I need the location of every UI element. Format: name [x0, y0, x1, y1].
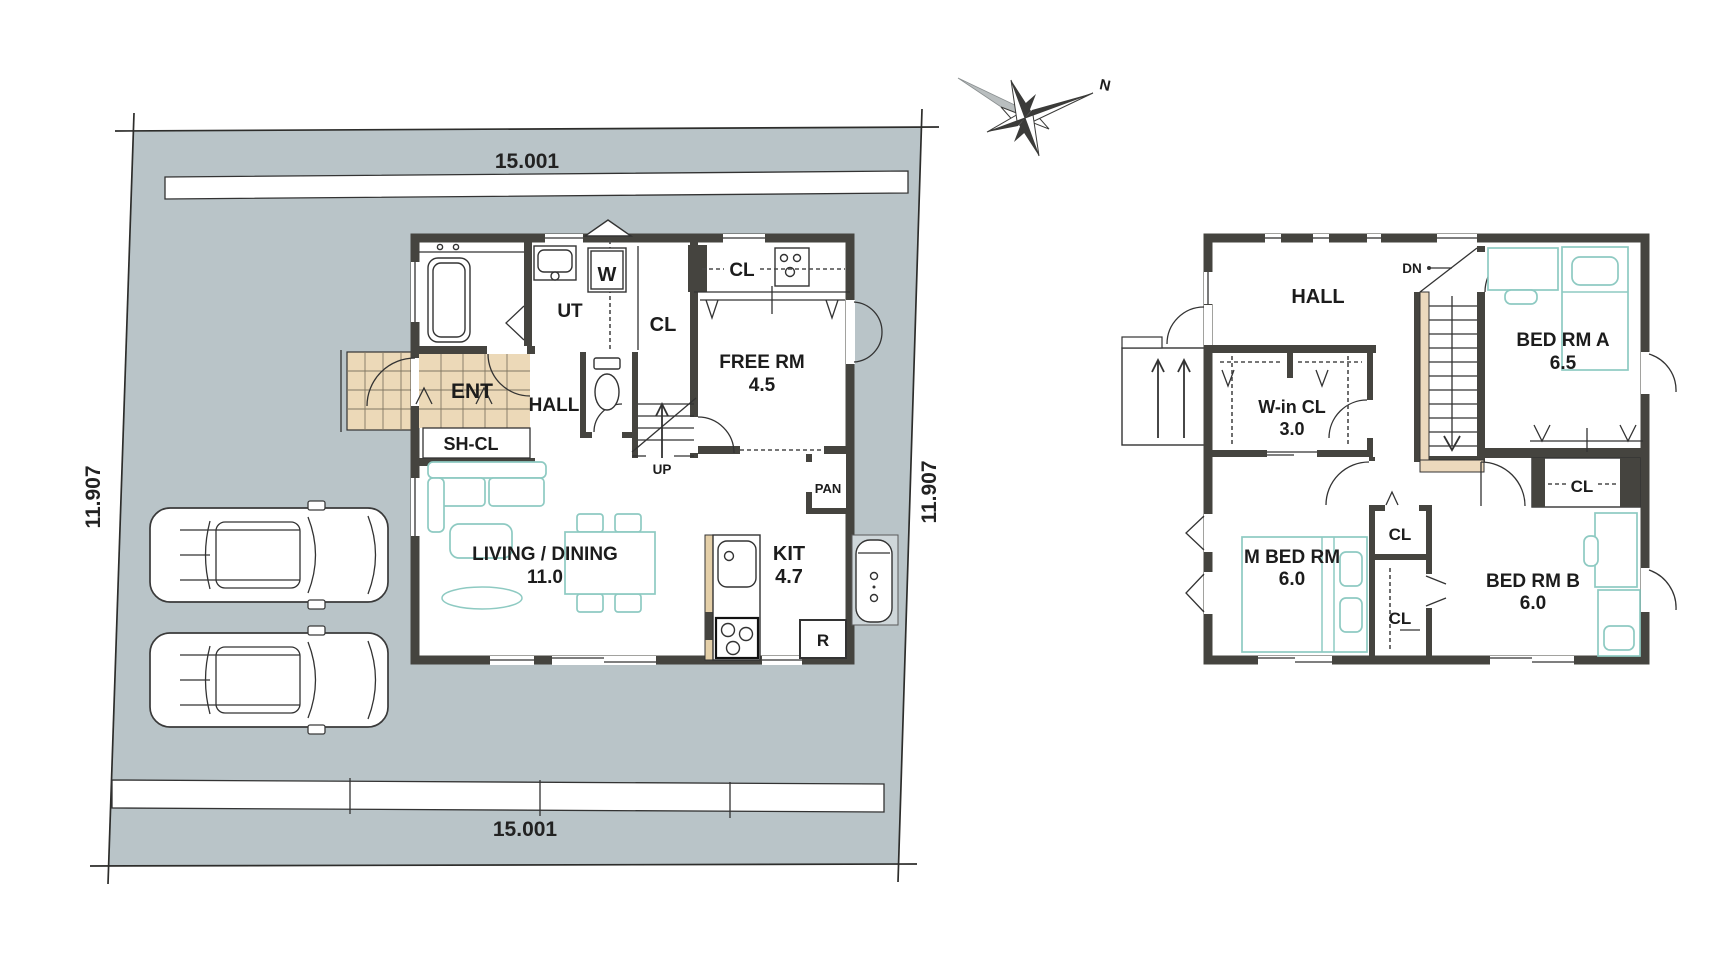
label-dn: DN: [1402, 261, 1422, 276]
dim-left-label: 11.907: [82, 465, 105, 528]
dim-right-label: 11.907: [918, 460, 941, 523]
stove: [716, 618, 758, 658]
label-m-bed: M BED RM: [1244, 547, 1340, 568]
dim-bottom-label: 15.001: [493, 818, 558, 841]
label-cl-lower: CL: [1389, 609, 1412, 628]
water-heater: [852, 535, 898, 625]
label-living: LIVING / DINING: [472, 544, 618, 565]
floor2-plan: HALL DN BED RM A 6.5 W-in CL 3.0 CL CL C…: [1122, 234, 1676, 665]
label-free-rm-area: 4.5: [749, 375, 776, 396]
label-bed-a-area: 6.5: [1550, 353, 1577, 374]
kitchen-sink: [718, 541, 756, 587]
label-free-rm: FREE RM: [719, 352, 805, 373]
car-1: [150, 501, 388, 609]
label-bed-b-area: 6.0: [1520, 593, 1546, 614]
compass-rose: [958, 78, 1093, 156]
washbasin: [534, 246, 576, 280]
label-cl-center: CL: [1389, 525, 1412, 544]
floor1-plan: UT W CL CL FREE RM 4.5 ENT HALL SH-CL UP…: [341, 220, 898, 665]
boiler-unit: [775, 248, 809, 286]
toilet: [594, 358, 620, 410]
label-ut: UT: [557, 301, 583, 322]
entrance-porch: [341, 350, 415, 432]
label-m-bed-area: 6.0: [1279, 569, 1305, 590]
label-living-area: 11.0: [527, 567, 563, 588]
floorplan-canvas: 15.001 15.001 11.907 11.907: [0, 0, 1730, 966]
label-sh-cl: SH-CL: [444, 434, 499, 454]
label-hall-1f: HALL: [529, 395, 580, 416]
label-bed-b: BED RM B: [1486, 571, 1580, 592]
label-hall-2f: HALL: [1291, 286, 1344, 308]
dim-top-label: 15.001: [495, 150, 560, 173]
label-cl-corridor: CL: [650, 314, 677, 336]
label-cl-bed-a: CL: [1571, 477, 1594, 496]
north-label: N: [1098, 76, 1112, 95]
label-cl-closet: CL: [729, 260, 755, 281]
label-win-cl-area: 3.0: [1279, 419, 1304, 439]
roof-below-area: [1122, 337, 1208, 445]
label-win-cl: W-in CL: [1258, 397, 1326, 417]
label-kit: KIT: [773, 543, 805, 565]
label-kit-area: 4.7: [775, 566, 803, 588]
car-2: [150, 626, 388, 734]
label-washer: W: [598, 264, 617, 286]
kitchen-counter: [705, 535, 760, 660]
label-pan: PAN: [815, 481, 841, 496]
label-bed-a: BED RM A: [1516, 330, 1610, 351]
label-up: UP: [653, 462, 672, 477]
label-ent: ENT: [451, 380, 493, 403]
